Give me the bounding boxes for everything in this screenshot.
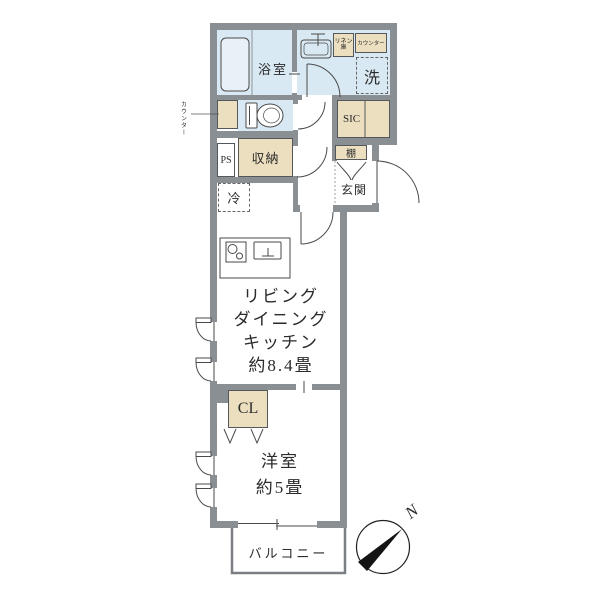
room-label-entrance: 玄関 bbox=[334, 182, 374, 197]
room-label-balcony: バルコニー bbox=[232, 543, 345, 561]
room-label-bedroom: 洋室 約5畳 bbox=[217, 448, 343, 502]
room-label-ldk: リビング ダイニング キッチン 約8.4畳 bbox=[217, 283, 345, 379]
kitchen-counter bbox=[220, 238, 290, 278]
window-symbol bbox=[196, 358, 217, 381]
toilet-icon bbox=[246, 103, 283, 128]
floor-plan: リネン庫 カウンター 洗 PS 収納 SIC 棚 冷 CL bbox=[0, 0, 600, 600]
window-symbol bbox=[196, 318, 217, 341]
bathtub-icon bbox=[221, 38, 249, 91]
counter-side-label: カウンター bbox=[176, 92, 190, 144]
washbasin-icon bbox=[301, 34, 331, 58]
window-symbol bbox=[196, 484, 217, 507]
compass bbox=[357, 521, 410, 574]
window-symbol bbox=[196, 452, 217, 475]
balcony-sliding-door bbox=[238, 519, 317, 530]
room-label-bathroom: 浴室 bbox=[252, 60, 294, 76]
